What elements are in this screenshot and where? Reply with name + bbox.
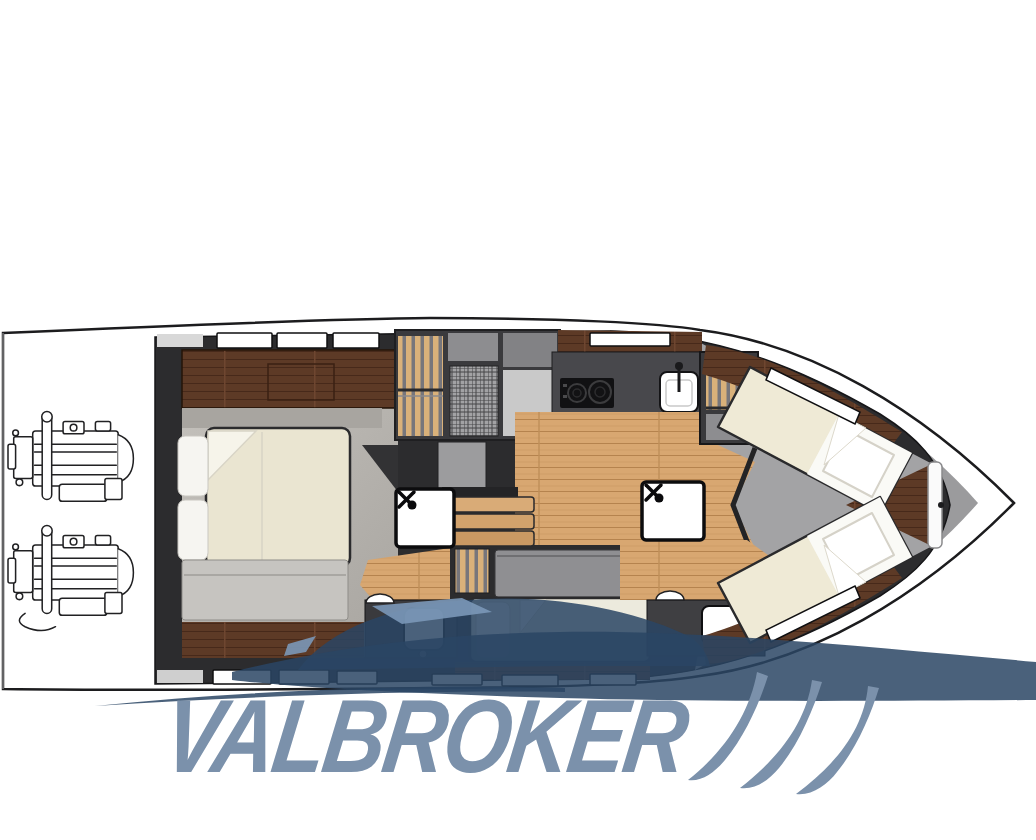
stair-step [452, 531, 534, 546]
hatch-grid [450, 366, 498, 436]
window [590, 333, 670, 346]
companionway-stairs [452, 497, 534, 546]
window [333, 333, 379, 348]
cabinet-top [448, 333, 498, 361]
shower-stall [642, 482, 704, 540]
shelf-fitting [938, 502, 944, 508]
pillow [178, 436, 208, 496]
cooktop-control [563, 395, 567, 398]
cabinet-top [503, 333, 557, 367]
stair-step [452, 497, 534, 512]
bench-seat [182, 560, 348, 620]
cabinet-shelf [182, 408, 382, 428]
window [217, 333, 272, 348]
logo-text: VALBROKER [157, 677, 695, 793]
window [277, 333, 327, 348]
stair-step [452, 514, 534, 529]
burner [589, 381, 611, 403]
logo: VALBROKER [157, 677, 695, 793]
shower-stall [396, 489, 454, 547]
floorplan-svg: VALBROKER [0, 0, 1036, 840]
pillow [178, 500, 208, 560]
cooktop-control [563, 384, 567, 387]
deck-sliver [157, 334, 203, 347]
hanging-clothes [455, 549, 489, 593]
burner [568, 384, 586, 402]
hanging-clothes [398, 336, 443, 436]
yacht-floorplan-image: VALBROKER [0, 0, 1036, 840]
stairs-cabinet [438, 442, 486, 488]
